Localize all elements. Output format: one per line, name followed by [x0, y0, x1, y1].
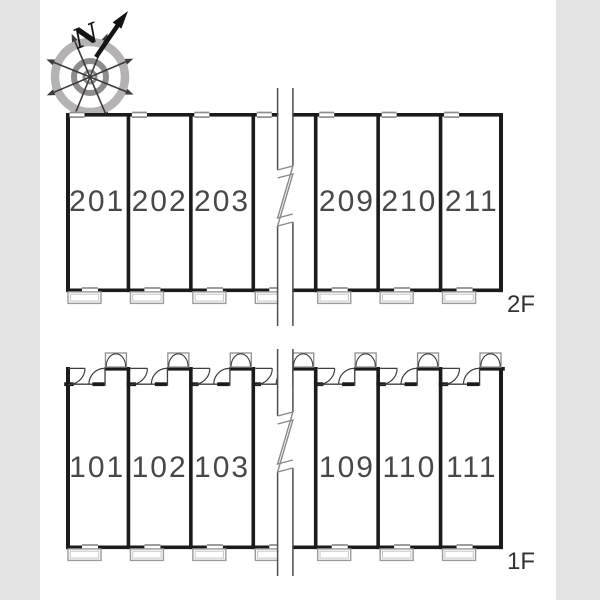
meter-box-symbol [355, 353, 376, 367]
balcony-symbol [68, 292, 101, 304]
wall [342, 382, 354, 386]
wall [251, 113, 255, 292]
floor-label-2F: 2F [507, 291, 535, 318]
wall [92, 382, 104, 386]
door-swing-arc [255, 368, 272, 384]
room-number-203: 203 [194, 185, 250, 218]
wall [439, 367, 443, 549]
meter-box-symbol [293, 353, 314, 367]
door-swing-arc [214, 368, 230, 384]
wall [376, 113, 380, 292]
door-swing-arc [339, 368, 355, 384]
door-swing-arc [318, 368, 335, 384]
floor-label-1F: 1F [507, 548, 535, 575]
balcony-symbol [318, 549, 351, 561]
room-number-109: 109 [319, 451, 375, 484]
balcony-symbol [380, 292, 413, 304]
page: N 2012022032092102112F101102103109110111… [0, 0, 600, 600]
balcony-symbol [68, 549, 101, 561]
wall [155, 382, 167, 386]
balcony-symbol [130, 292, 163, 304]
door-swing-arc [401, 368, 417, 384]
wall [499, 367, 503, 549]
wall [439, 113, 443, 292]
wall [127, 367, 131, 549]
room-number-102: 102 [132, 451, 188, 484]
wall [189, 367, 193, 549]
room-number-210: 210 [381, 185, 437, 218]
balcony-symbol [380, 549, 413, 561]
meter-box-symbol [168, 353, 189, 367]
wall [217, 382, 229, 386]
wall [376, 367, 380, 549]
room-number-101: 101 [69, 451, 125, 484]
balcony-symbol [193, 549, 226, 561]
wall [314, 113, 318, 292]
balcony-symbol [443, 292, 476, 304]
wall [127, 113, 131, 292]
door-swing-arc [464, 368, 480, 384]
door-swing-arc [68, 368, 85, 384]
balcony-symbol [193, 292, 226, 304]
meter-box-symbol [105, 353, 126, 367]
wall [405, 382, 417, 386]
wall [314, 367, 318, 549]
room-number-110: 110 [382, 451, 436, 484]
wall [499, 113, 503, 292]
room-number-209: 209 [319, 185, 375, 218]
wall [189, 113, 193, 292]
floor-1f: 1011021031091101111F [64, 349, 535, 576]
door-swing-arc [89, 368, 105, 384]
balcony-symbol [318, 292, 351, 304]
room-number-111: 111 [446, 451, 498, 484]
door-swing-arc [193, 368, 210, 384]
floorplan-svg: 2012022032092102112F1011021031091101111F [0, 0, 600, 600]
door-swing-arc [151, 368, 167, 384]
wall [251, 367, 255, 549]
room-number-202: 202 [132, 185, 188, 218]
floor-2f: 2012022032092102112F [66, 88, 535, 326]
room-number-211: 211 [445, 185, 499, 218]
room-number-201: 201 [69, 185, 125, 218]
meter-box-symbol [230, 353, 251, 367]
balcony-symbol [130, 549, 163, 561]
room-number-103: 103 [194, 451, 250, 484]
meter-box-symbol [480, 353, 501, 367]
balcony-symbol [443, 549, 476, 561]
wall [467, 382, 479, 386]
door-swing-arc [443, 368, 460, 384]
meter-box-symbol [418, 353, 439, 367]
door-swing-arc [380, 368, 397, 384]
door-swing-arc [131, 368, 148, 384]
